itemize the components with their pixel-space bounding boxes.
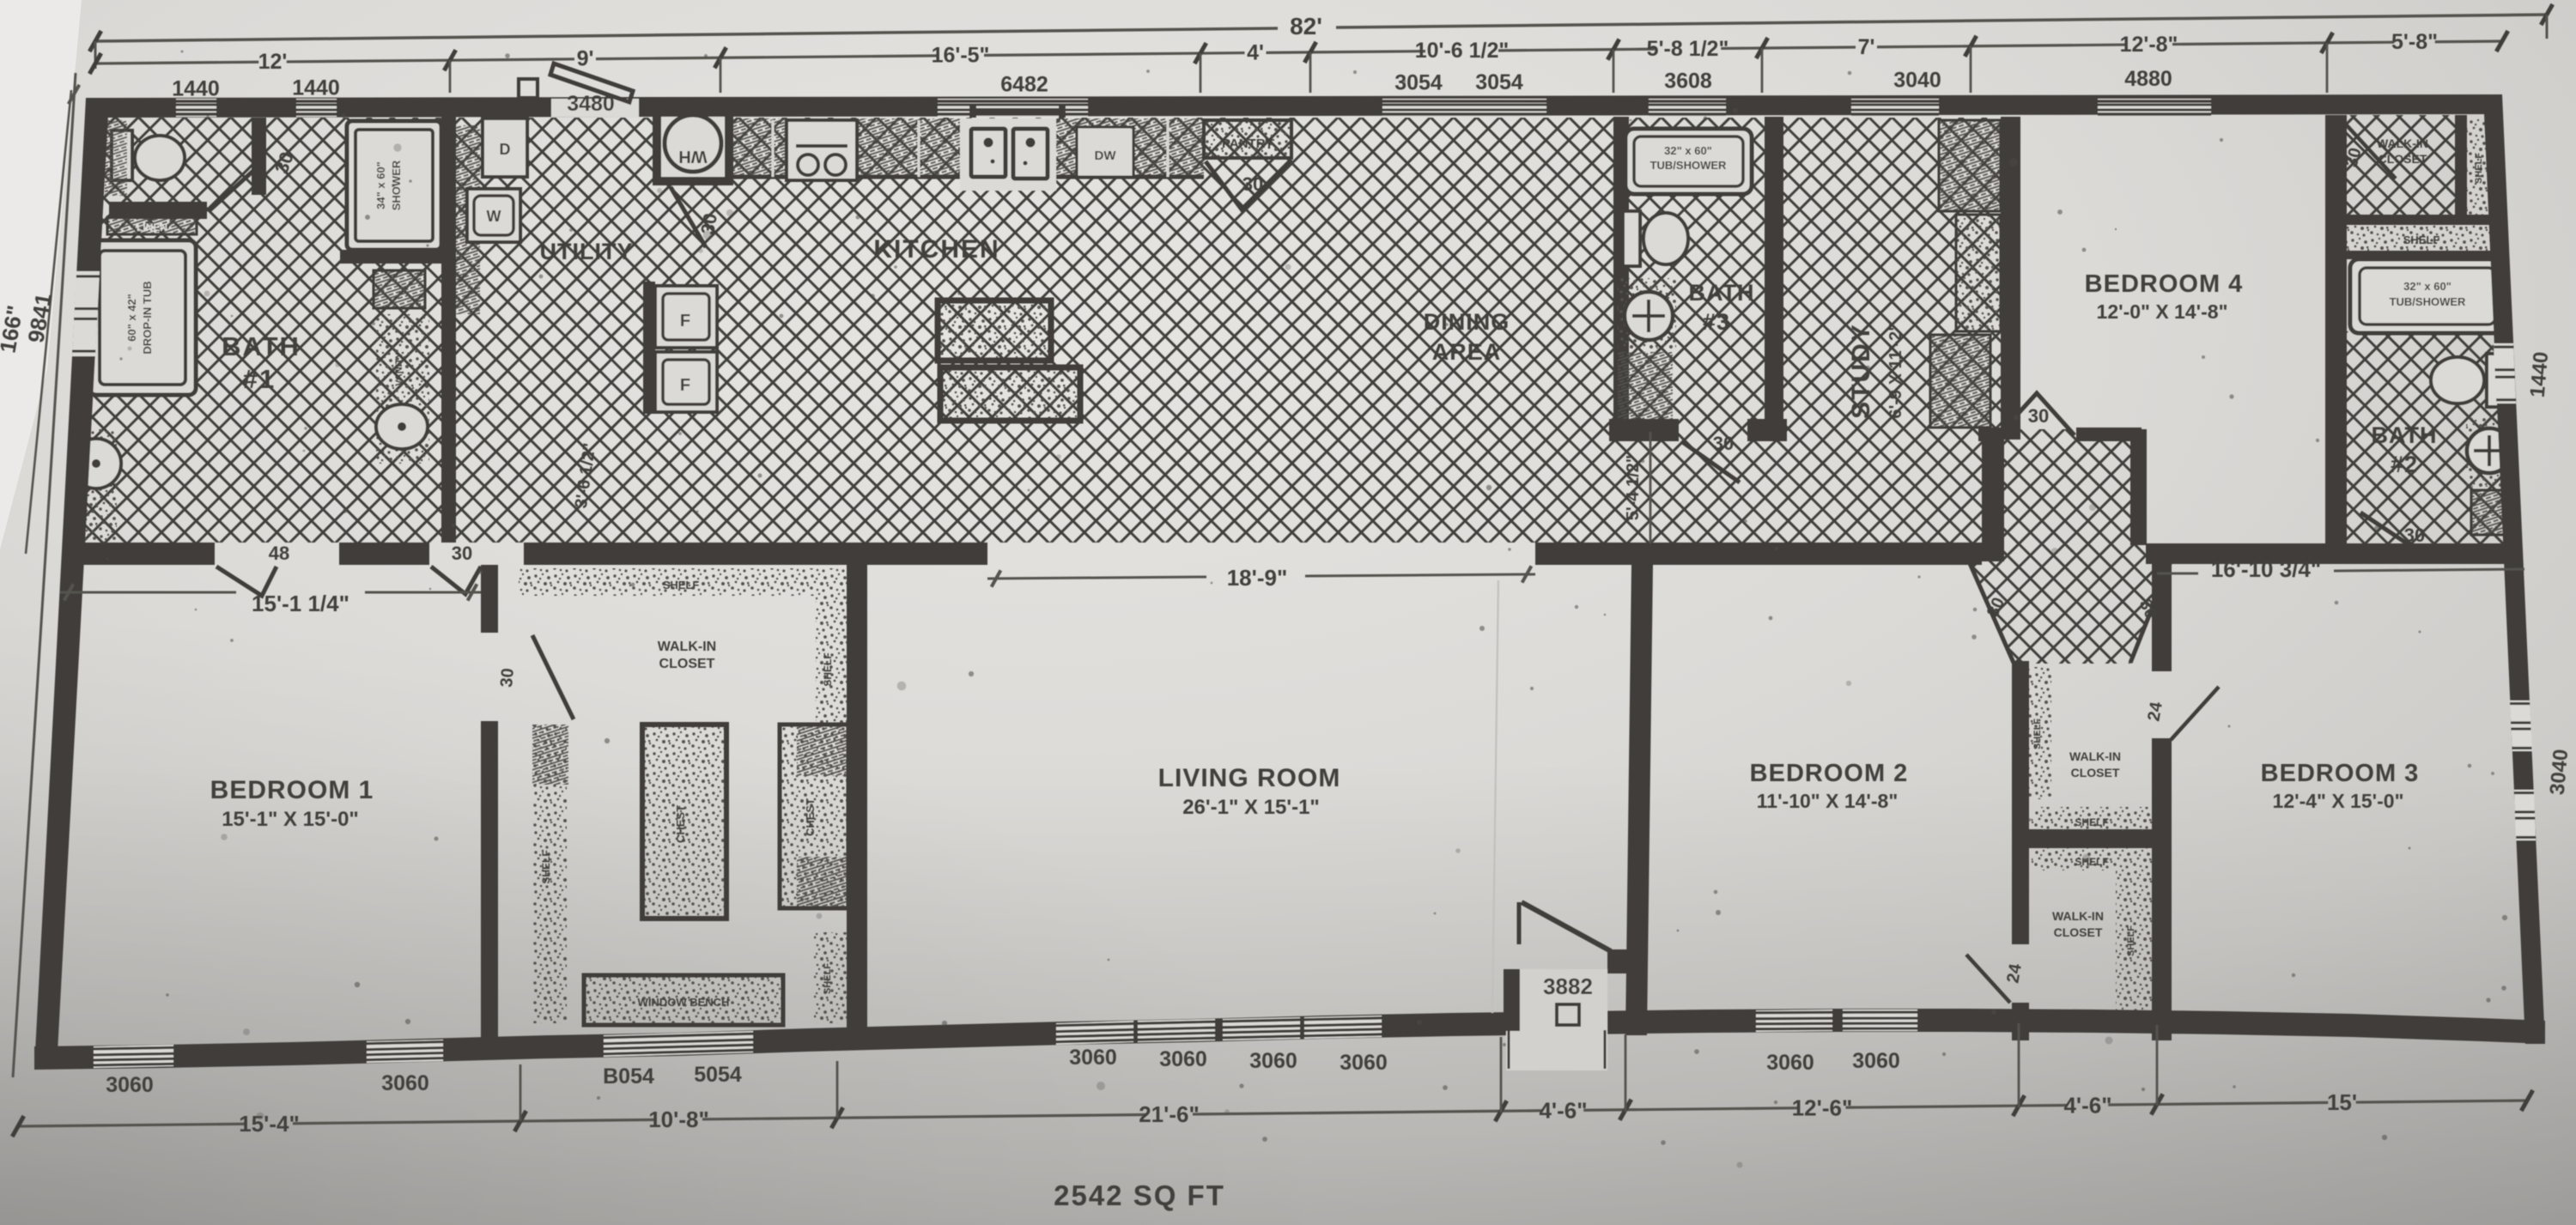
svg-text:CLOSET: CLOSET: [659, 657, 715, 671]
svg-text:32" x 60": 32" x 60": [2403, 280, 2451, 293]
svg-text:D: D: [500, 141, 511, 158]
svg-text:9': 9': [577, 47, 594, 71]
svg-text:12'-4" X 15'-0": 12'-4" X 15'-0": [2273, 790, 2404, 812]
svg-text:15'-4": 15'-4": [239, 1111, 300, 1137]
svg-text:WALK-IN: WALK-IN: [658, 640, 716, 654]
svg-text:3608: 3608: [1664, 70, 1712, 94]
svg-text:5'-8": 5'-8": [2391, 30, 2438, 54]
svg-text:30: 30: [2404, 525, 2425, 546]
svg-text:3060: 3060: [1249, 1049, 1297, 1073]
svg-text:15': 15': [2327, 1089, 2357, 1115]
svg-text:WINDOW BENCH: WINDOW BENCH: [638, 996, 730, 1009]
svg-text:SHELF: SHELF: [663, 579, 700, 591]
svg-text:BEDROOM 3: BEDROOM 3: [2261, 760, 2420, 787]
svg-text:SHELF: SHELF: [2403, 233, 2440, 246]
svg-text:1440: 1440: [2526, 351, 2554, 399]
svg-text:AREA: AREA: [1432, 339, 1502, 365]
svg-text:82': 82': [1290, 13, 1322, 39]
svg-text:BATH: BATH: [1689, 280, 1755, 306]
svg-text:15'-1 1/4": 15'-1 1/4": [252, 591, 349, 616]
svg-text:4880: 4880: [2124, 67, 2172, 91]
svg-text:SHELF: SHELF: [822, 652, 834, 686]
svg-text:5'-4 1/2": 5'-4 1/2": [1624, 455, 1643, 521]
svg-text:16'-10 3/4": 16'-10 3/4": [2211, 556, 2321, 582]
svg-text:3060: 3060: [1852, 1049, 1900, 1073]
svg-text:4'-6": 4'-6": [2063, 1092, 2111, 1118]
svg-text:60" x 42": 60" x 42": [125, 294, 138, 342]
svg-text:BATH: BATH: [222, 331, 301, 361]
svg-text:21'-6": 21'-6": [1139, 1101, 1200, 1127]
svg-text:30: 30: [2028, 405, 2049, 427]
svg-text:#1: #1: [243, 364, 276, 394]
svg-text:12'-6": 12'-6": [1792, 1095, 1853, 1120]
svg-text:3040: 3040: [2546, 749, 2573, 797]
svg-text:LIVING ROOM: LIVING ROOM: [1158, 764, 1341, 792]
svg-text:3882: 3882: [1543, 973, 1593, 999]
svg-text:F: F: [680, 312, 690, 331]
svg-text:WALK-IN: WALK-IN: [2052, 909, 2104, 923]
svg-text:5054: 5054: [694, 1063, 742, 1087]
svg-text:3060: 3060: [381, 1071, 429, 1095]
svg-text:34" x 60": 34" x 60": [374, 161, 387, 209]
svg-text:BATH: BATH: [2372, 422, 2438, 448]
svg-text:WH: WH: [678, 147, 707, 166]
svg-text:12': 12': [258, 50, 288, 74]
svg-text:CLOSET: CLOSET: [2054, 925, 2103, 939]
svg-text:26'-1" X 15'-1": 26'-1" X 15'-1": [1182, 796, 1320, 819]
svg-text:SHELF: SHELF: [540, 850, 552, 883]
svg-text:VANITY: VANITY: [394, 352, 404, 386]
svg-text:12'-0" X 14'-8": 12'-0" X 14'-8": [2097, 300, 2228, 323]
svg-text:4'-6": 4'-6": [1539, 1098, 1587, 1124]
svg-text:3054: 3054: [1475, 70, 1523, 94]
svg-text:F: F: [680, 376, 690, 395]
svg-text:KITCHEN: KITCHEN: [873, 235, 999, 264]
svg-text:SHELF: SHELF: [2474, 153, 2484, 184]
svg-text:CHEST: CHEST: [674, 805, 687, 843]
svg-text:SHELF: SHELF: [2032, 719, 2043, 749]
svg-text:3480: 3480: [567, 92, 615, 116]
svg-text:B054: B054: [603, 1064, 654, 1089]
svg-text:30: 30: [497, 667, 518, 688]
svg-text:16'-5": 16'-5": [932, 44, 990, 68]
svg-text:32" x 60": 32" x 60": [1664, 144, 1712, 157]
svg-text:30: 30: [1242, 173, 1263, 195]
svg-text:30: 30: [452, 543, 472, 564]
svg-text:1440: 1440: [172, 76, 220, 100]
svg-text:DROP-IN TUB: DROP-IN TUB: [141, 281, 154, 354]
svg-text:30: 30: [1713, 433, 1734, 454]
svg-text:#3: #3: [1703, 309, 1730, 335]
svg-text:11'-10" X 14'-8": 11'-10" X 14'-8": [1757, 790, 1898, 812]
svg-text:15'-1" X 15'-0": 15'-1" X 15'-0": [222, 808, 359, 831]
svg-text:12'-8": 12'-8": [2120, 33, 2178, 57]
svg-text:SHELF: SHELF: [2126, 925, 2136, 956]
svg-text:CLOSET: CLOSET: [2071, 766, 2120, 779]
svg-text:BEDROOM 1: BEDROOM 1: [210, 776, 374, 804]
svg-text:4': 4': [1247, 40, 1264, 64]
svg-text:WALK-IN: WALK-IN: [2377, 136, 2428, 150]
svg-text:18'-9": 18'-9": [1227, 565, 1288, 591]
svg-text:CHEST: CHEST: [804, 798, 817, 836]
svg-text:1440: 1440: [292, 76, 340, 100]
svg-text:3060: 3060: [1766, 1051, 1814, 1075]
svg-text:CLOSET: CLOSET: [2379, 152, 2427, 166]
svg-text:7': 7': [1858, 35, 1875, 59]
svg-text:STUDY: STUDY: [1847, 323, 1875, 419]
svg-text:SHELF: SHELF: [823, 963, 833, 994]
svg-text:48: 48: [269, 543, 289, 564]
svg-text:5'-8 1/2": 5'-8 1/2": [1647, 37, 1729, 61]
svg-text:WALK-IN: WALK-IN: [2069, 749, 2121, 763]
svg-text:DW: DW: [1095, 149, 1117, 163]
svg-text:3060: 3060: [1159, 1047, 1207, 1071]
svg-text:TUB/SHOWER: TUB/SHOWER: [2390, 295, 2466, 308]
svg-text:TUB/SHOWER: TUB/SHOWER: [1650, 159, 1727, 172]
svg-text:DINING: DINING: [1424, 309, 1510, 335]
svg-text:BEDROOM 2: BEDROOM 2: [1750, 760, 1909, 787]
svg-text:10'-8": 10'-8": [648, 1107, 709, 1132]
svg-text:#2: #2: [2391, 452, 2418, 477]
svg-text:3040: 3040: [1893, 68, 1941, 92]
svg-text:2542 SQ FT: 2542 SQ FT: [1054, 1180, 1225, 1211]
svg-text:6'-9 X 11'-2": 6'-9 X 11'-2": [1886, 323, 1905, 418]
svg-text:3054: 3054: [1394, 70, 1443, 94]
svg-text:10'-6 1/2": 10'-6 1/2": [1415, 39, 1510, 63]
svg-text:SHELF: SHELF: [2075, 856, 2108, 868]
svg-text:SHELF: SHELF: [2075, 816, 2108, 828]
svg-text:3060: 3060: [1069, 1046, 1117, 1070]
svg-text:3060: 3060: [1340, 1051, 1388, 1075]
svg-text:W: W: [487, 208, 501, 225]
svg-text:LINEN: LINEN: [137, 221, 167, 233]
svg-text:6482: 6482: [1000, 73, 1048, 97]
svg-text:PANTRY: PANTRY: [1222, 136, 1273, 151]
svg-text:3060: 3060: [106, 1073, 154, 1097]
svg-text:UTILITY: UTILITY: [540, 239, 634, 264]
